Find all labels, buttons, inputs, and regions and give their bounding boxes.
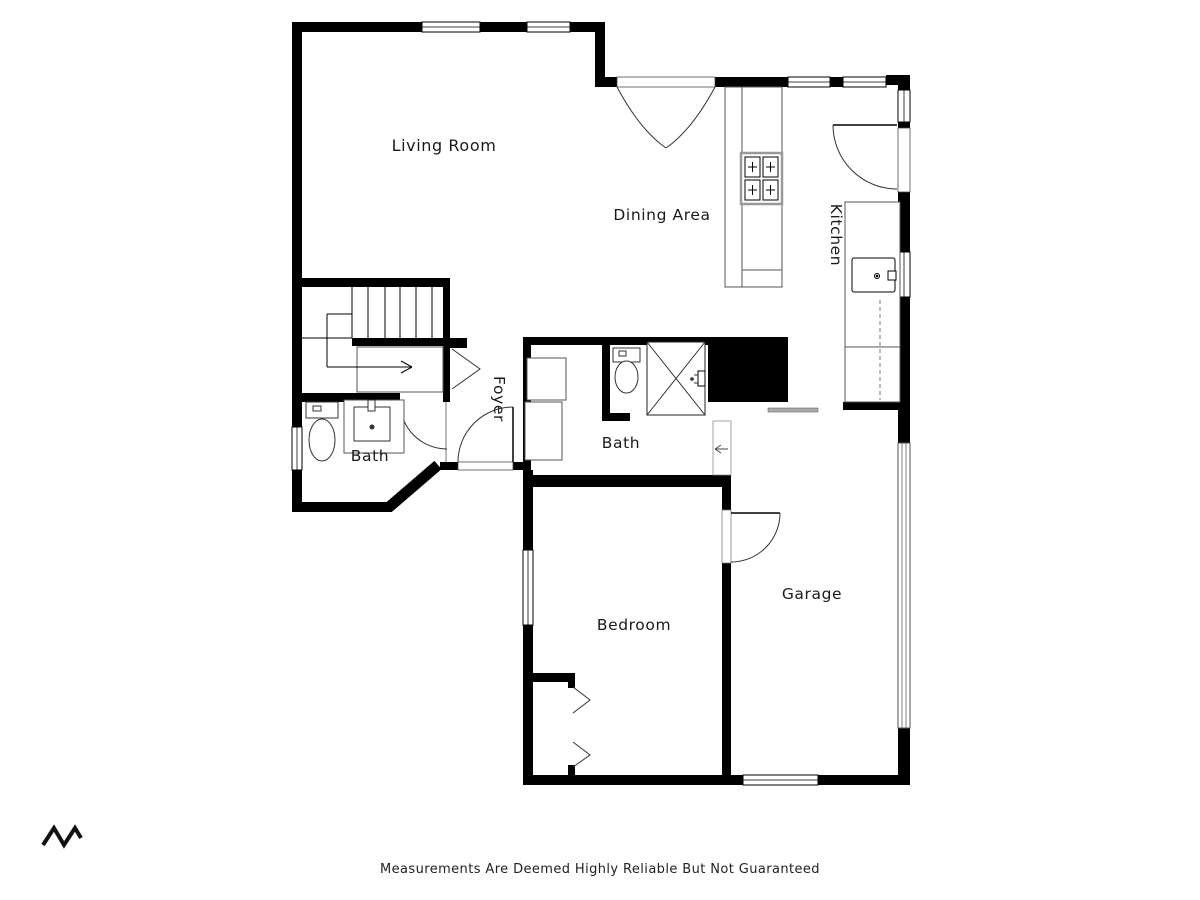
window-living-room-1 bbox=[422, 22, 480, 32]
window-bedroom bbox=[523, 550, 533, 625]
disclaimer-text: Measurements Are Deemed Highly Reliable … bbox=[380, 862, 820, 877]
window-garage-bottom bbox=[743, 775, 818, 785]
dining-double-door-opening bbox=[617, 77, 715, 87]
floorplan-page: Living Room Dining Area Kitchen Foyer Ba… bbox=[0, 0, 1200, 900]
bath-left-label: Bath bbox=[351, 447, 389, 465]
window-living-room-2 bbox=[527, 22, 570, 32]
sink-vanity-icon bbox=[344, 400, 404, 453]
bath-center-label: Bath bbox=[602, 434, 640, 452]
window-kitchen-right-1 bbox=[898, 90, 910, 122]
doors-layer bbox=[400, 87, 897, 562]
kitchen-sink-icon bbox=[852, 258, 896, 292]
toilet-icon bbox=[306, 402, 338, 461]
garage-entry-opening bbox=[722, 510, 731, 563]
foyer-label: Foyer bbox=[490, 376, 508, 422]
counter-right bbox=[845, 202, 900, 402]
zigzag-logo bbox=[43, 828, 81, 845]
closet-bifold-door-icon-2 bbox=[573, 742, 590, 767]
garage-label: Garage bbox=[782, 585, 842, 603]
kitchen-label: Kitchen bbox=[827, 204, 845, 266]
window-dining-1 bbox=[788, 77, 830, 87]
closet-bifold-door-icon-1 bbox=[573, 687, 590, 713]
garage-entry-door-icon bbox=[731, 513, 780, 562]
window-dining-2 bbox=[843, 77, 886, 87]
stair-landing bbox=[357, 347, 443, 392]
living-room-label: Living Room bbox=[392, 136, 497, 155]
toilet-icon bbox=[613, 348, 640, 393]
understair-closet-door-icon bbox=[452, 349, 480, 389]
stove-icon bbox=[741, 153, 782, 204]
garage-door-strip bbox=[898, 443, 910, 728]
bath-left-door-icon bbox=[400, 402, 447, 462]
dining-area-label: Dining Area bbox=[613, 206, 710, 224]
floorplan-drawing: Living Room Dining Area Kitchen Foyer Ba… bbox=[0, 0, 1200, 900]
french-doors-icon bbox=[617, 87, 715, 148]
garage-step-threshold bbox=[768, 408, 818, 412]
bedroom-fixtures bbox=[573, 687, 590, 767]
kitchen-door-icon bbox=[833, 125, 897, 189]
kitchen-back-door-opening bbox=[898, 128, 910, 192]
window-bath-left bbox=[292, 427, 302, 470]
linen-cabinet-icon bbox=[525, 358, 566, 460]
front-door-opening bbox=[458, 462, 513, 470]
bedroom-label: Bedroom bbox=[597, 616, 671, 634]
bath-diagonal-wall bbox=[388, 465, 438, 508]
shower-icon bbox=[647, 342, 705, 415]
